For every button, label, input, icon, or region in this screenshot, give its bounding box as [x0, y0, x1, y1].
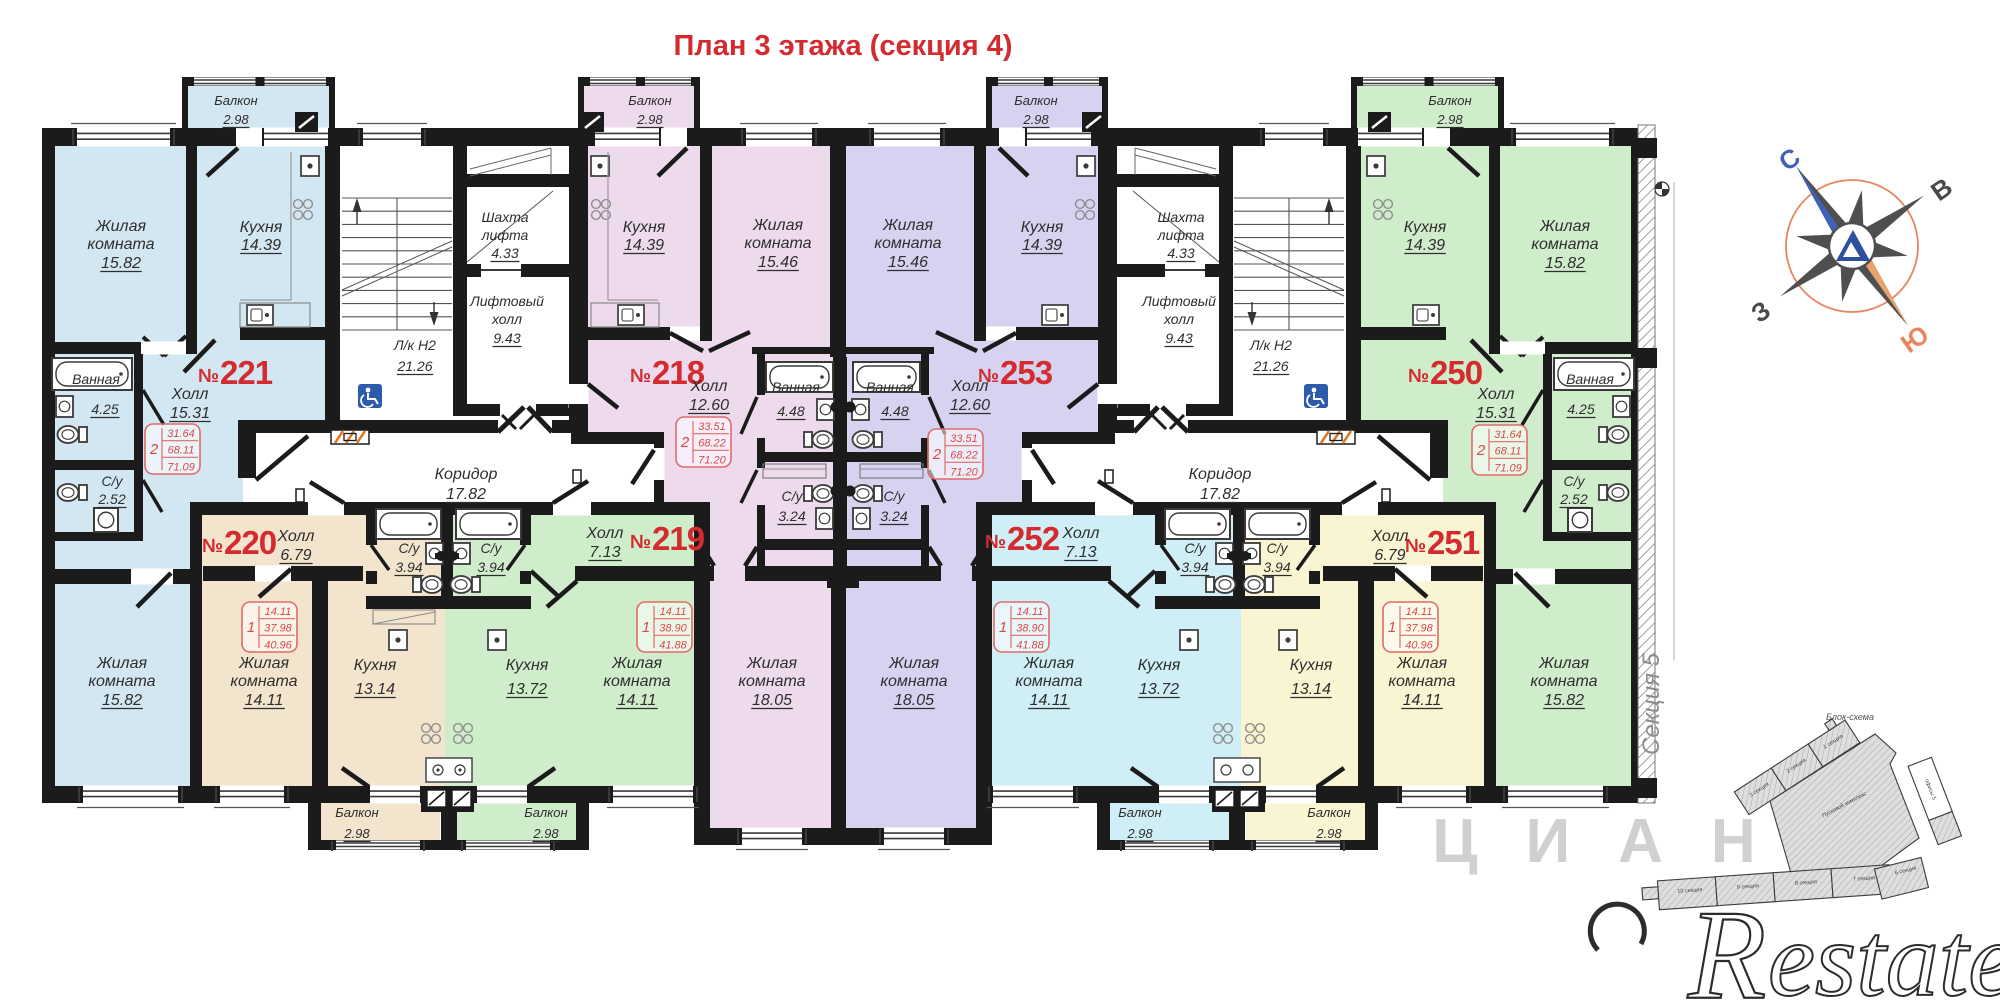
- svg-text:ЦИАН: ЦИАН: [1432, 807, 1803, 876]
- svg-text:252: 252: [1007, 520, 1060, 557]
- svg-text:71.09: 71.09: [1494, 462, 1522, 474]
- svg-text:40.96: 40.96: [264, 639, 292, 651]
- svg-text:3.24: 3.24: [778, 508, 805, 524]
- svg-text:комната: комната: [1388, 673, 1455, 690]
- svg-text:Жилая: Жилая: [1539, 218, 1590, 235]
- svg-text:Секция 5: Секция 5: [1638, 652, 1665, 755]
- svg-text:Ванная: Ванная: [772, 379, 820, 395]
- svg-text:1: 1: [999, 619, 1007, 636]
- svg-text:14.11: 14.11: [245, 692, 284, 709]
- svg-text:Балкон: Балкон: [1014, 93, 1057, 108]
- svg-text:13.14: 13.14: [1291, 681, 1331, 698]
- svg-text:7.13: 7.13: [589, 544, 620, 561]
- svg-text:14.39: 14.39: [241, 237, 281, 254]
- svg-text:комната: комната: [744, 235, 811, 252]
- svg-text:14.39: 14.39: [1405, 237, 1445, 254]
- svg-text:17.82: 17.82: [1200, 486, 1240, 503]
- svg-text:14.11: 14.11: [1403, 692, 1442, 709]
- svg-text:3.94: 3.94: [1181, 559, 1208, 575]
- svg-text:Кухня: Кухня: [1404, 219, 1447, 236]
- svg-text:№: №: [1408, 366, 1429, 387]
- svg-text:13.72: 13.72: [1139, 681, 1179, 698]
- svg-text:15.31: 15.31: [1476, 405, 1516, 422]
- svg-text:Лифтовый: Лифтовый: [1141, 293, 1216, 309]
- svg-text:№: №: [198, 366, 219, 387]
- svg-text:219: 219: [652, 520, 705, 557]
- svg-text:комната: комната: [1531, 236, 1598, 253]
- svg-text:15.31: 15.31: [170, 405, 210, 422]
- svg-text:комната: комната: [1530, 673, 1597, 690]
- svg-text:17.82: 17.82: [446, 486, 486, 503]
- svg-text:14.11: 14.11: [660, 606, 687, 618]
- svg-text:С/у: С/у: [399, 540, 421, 556]
- svg-text:4.25: 4.25: [91, 401, 118, 417]
- svg-text:15.82: 15.82: [1545, 255, 1585, 272]
- svg-text:Холл: Холл: [586, 525, 624, 542]
- svg-text:13.72: 13.72: [507, 681, 547, 698]
- svg-text:2.52: 2.52: [1559, 491, 1587, 507]
- svg-text:13.14: 13.14: [355, 681, 395, 698]
- svg-text:2.98: 2.98: [343, 826, 370, 841]
- svg-text:лифта: лифта: [1157, 227, 1205, 243]
- svg-text:Кухня: Кухня: [240, 219, 283, 236]
- svg-text:Жилая: Жилая: [611, 655, 662, 672]
- svg-text:33.51: 33.51: [950, 433, 978, 445]
- svg-text:21.26: 21.26: [396, 358, 432, 374]
- svg-text:комната: комната: [880, 673, 947, 690]
- svg-text:Балкон: Балкон: [1428, 93, 1471, 108]
- svg-text:14.11: 14.11: [265, 606, 292, 618]
- svg-text:15.46: 15.46: [758, 254, 798, 271]
- svg-text:220: 220: [224, 524, 276, 561]
- svg-text:68.22: 68.22: [698, 438, 726, 450]
- svg-text:15.46: 15.46: [888, 254, 928, 271]
- svg-text:комната: комната: [603, 673, 670, 690]
- svg-text:Коридор: Коридор: [1189, 466, 1252, 483]
- svg-text:Холл: Холл: [277, 528, 315, 545]
- svg-text:С/у: С/у: [884, 488, 906, 504]
- svg-text:Ванная: Ванная: [72, 371, 120, 387]
- svg-text:3.24: 3.24: [880, 508, 907, 524]
- svg-text:2.98: 2.98: [1126, 826, 1153, 841]
- svg-text:Кухня: Кухня: [506, 657, 549, 674]
- svg-text:6.79: 6.79: [1374, 547, 1405, 564]
- svg-text:38.90: 38.90: [659, 623, 687, 635]
- svg-text:С/у: С/у: [102, 473, 124, 489]
- svg-text:40.96: 40.96: [1405, 639, 1433, 651]
- svg-text:№: №: [630, 532, 651, 553]
- svg-text:Кухня: Кухня: [1138, 657, 1181, 674]
- svg-text:холл: холл: [1163, 311, 1194, 327]
- svg-text:14.11: 14.11: [1030, 692, 1069, 709]
- svg-text:комната: комната: [230, 673, 297, 690]
- svg-text:18.05: 18.05: [752, 692, 792, 709]
- svg-text:2: 2: [149, 441, 159, 458]
- svg-text:4.33: 4.33: [1167, 245, 1194, 261]
- svg-text:Холл: Холл: [1477, 386, 1515, 403]
- svg-text:2: 2: [1476, 442, 1486, 459]
- svg-text:С/у: С/у: [782, 488, 804, 504]
- svg-text:7.13: 7.13: [1065, 544, 1096, 561]
- svg-text:С/у: С/у: [1185, 540, 1207, 556]
- svg-text:Жилая: Жилая: [1023, 655, 1074, 672]
- svg-text:estate: estate: [1768, 901, 2000, 1000]
- svg-text:31.64: 31.64: [167, 428, 195, 440]
- svg-text:Жилая: Жилая: [96, 655, 147, 672]
- svg-text:15.82: 15.82: [101, 255, 141, 272]
- svg-text:Жилая: Жилая: [888, 655, 939, 672]
- svg-text:14.11: 14.11: [1017, 606, 1044, 618]
- svg-text:R: R: [1687, 884, 1766, 1000]
- svg-text:Балкон: Балкон: [1307, 805, 1350, 820]
- svg-text:холл: холл: [491, 311, 522, 327]
- svg-text:С/у: С/у: [1267, 540, 1289, 556]
- svg-text:Холл: Холл: [690, 378, 728, 395]
- svg-text:14.11: 14.11: [1406, 606, 1433, 618]
- svg-text:4.48: 4.48: [881, 403, 908, 419]
- svg-text:Холл: Холл: [171, 386, 209, 403]
- svg-text:3.94: 3.94: [1263, 559, 1290, 575]
- svg-text:№: №: [202, 536, 223, 557]
- svg-text:С/у: С/у: [1564, 473, 1586, 489]
- svg-text:2.52: 2.52: [97, 491, 125, 507]
- svg-text:2.98: 2.98: [1436, 112, 1463, 127]
- svg-text:37.98: 37.98: [264, 623, 292, 635]
- svg-text:2.98: 2.98: [532, 826, 559, 841]
- svg-text:68.11: 68.11: [1495, 446, 1522, 458]
- svg-text:Кухня: Кухня: [354, 657, 397, 674]
- svg-text:12.60: 12.60: [689, 397, 729, 414]
- svg-text:Жилая: Жилая: [752, 217, 803, 234]
- svg-text:Жилая: Жилая: [746, 655, 797, 672]
- svg-text:253: 253: [1000, 354, 1053, 391]
- svg-text:15.82: 15.82: [102, 692, 142, 709]
- svg-text:План 3 этажа (секция 4): План 3 этажа (секция 4): [673, 30, 1012, 62]
- svg-text:Балкон: Балкон: [335, 805, 378, 820]
- svg-text:Кухня: Кухня: [1021, 219, 1064, 236]
- svg-text:Коридор: Коридор: [435, 466, 498, 483]
- svg-text:21.26: 21.26: [1252, 358, 1288, 374]
- svg-text:31.64: 31.64: [1494, 429, 1522, 441]
- svg-text:4.25: 4.25: [1567, 401, 1594, 417]
- svg-text:Л/к Н2: Л/к Н2: [393, 337, 436, 353]
- svg-text:Лифтовый: Лифтовый: [469, 293, 544, 309]
- svg-text:2.98: 2.98: [1315, 826, 1342, 841]
- svg-text:2.98: 2.98: [1022, 112, 1049, 127]
- svg-text:2: 2: [932, 446, 942, 463]
- svg-text:Жилая: Жилая: [95, 218, 146, 235]
- svg-text:Жилая: Жилая: [882, 217, 933, 234]
- svg-text:Балкон: Балкон: [214, 93, 257, 108]
- svg-text:Ванная: Ванная: [1566, 371, 1614, 387]
- svg-text:комната: комната: [87, 236, 154, 253]
- svg-text:38.90: 38.90: [1016, 623, 1044, 635]
- svg-text:1: 1: [247, 619, 255, 636]
- svg-text:Кухня: Кухня: [623, 219, 666, 236]
- svg-text:Шахта: Шахта: [1158, 209, 1205, 225]
- svg-text:3.94: 3.94: [395, 559, 422, 575]
- svg-text:41.88: 41.88: [659, 639, 687, 651]
- svg-text:9.43: 9.43: [1165, 330, 1192, 346]
- svg-text:Балкон: Балкон: [524, 805, 567, 820]
- svg-text:2.98: 2.98: [636, 112, 663, 127]
- svg-text:Жилая: Жилая: [1538, 655, 1589, 672]
- svg-text:комната: комната: [88, 673, 155, 690]
- svg-text:Ванная: Ванная: [866, 379, 914, 395]
- svg-text:6.79: 6.79: [280, 547, 311, 564]
- svg-text:250: 250: [1430, 354, 1482, 391]
- svg-text:2.98: 2.98: [222, 112, 249, 127]
- svg-text:71.20: 71.20: [950, 466, 978, 478]
- svg-text:3.94: 3.94: [477, 559, 504, 575]
- svg-text:4.48: 4.48: [777, 403, 804, 419]
- svg-text:33.51: 33.51: [698, 421, 726, 433]
- svg-text:комната: комната: [874, 235, 941, 252]
- svg-text:71.20: 71.20: [698, 454, 726, 466]
- svg-text:Жилая: Жилая: [238, 655, 289, 672]
- svg-text:№: №: [985, 532, 1006, 553]
- svg-text:9.43: 9.43: [493, 330, 520, 346]
- svg-text:1: 1: [642, 619, 650, 636]
- svg-text:Холл: Холл: [951, 378, 989, 395]
- svg-text:Кухня: Кухня: [1290, 657, 1333, 674]
- svg-text:12.60: 12.60: [950, 397, 990, 414]
- svg-text:14.39: 14.39: [1022, 237, 1062, 254]
- svg-text:Холл: Холл: [1371, 528, 1409, 545]
- svg-text:14.11: 14.11: [618, 692, 657, 709]
- svg-text:1: 1: [1388, 619, 1396, 636]
- svg-text:комната: комната: [738, 673, 805, 690]
- svg-text:221: 221: [220, 354, 273, 391]
- svg-text:68.22: 68.22: [950, 450, 978, 462]
- svg-text:Балкон: Балкон: [1118, 805, 1161, 820]
- svg-text:лифта: лифта: [481, 227, 529, 243]
- svg-text:18.05: 18.05: [894, 692, 934, 709]
- svg-text:2: 2: [680, 434, 690, 451]
- svg-text:Холл: Холл: [1062, 525, 1100, 542]
- svg-text:4.33: 4.33: [491, 245, 518, 261]
- svg-text:№: №: [630, 366, 651, 387]
- svg-text:68.11: 68.11: [168, 445, 195, 457]
- svg-text:251: 251: [1427, 524, 1480, 561]
- svg-text:С/у: С/у: [481, 540, 503, 556]
- svg-text:Жилая: Жилая: [1396, 655, 1447, 672]
- svg-text:Балкон: Балкон: [628, 93, 671, 108]
- svg-text:Л/к Н2: Л/к Н2: [1249, 337, 1292, 353]
- svg-text:71.09: 71.09: [167, 461, 195, 473]
- svg-text:14.39: 14.39: [624, 237, 664, 254]
- svg-text:комната: комната: [1015, 673, 1082, 690]
- svg-text:37.98: 37.98: [1405, 623, 1433, 635]
- svg-text:41.88: 41.88: [1016, 639, 1044, 651]
- svg-text:Шахта: Шахта: [482, 209, 529, 225]
- svg-text:15.82: 15.82: [1544, 692, 1584, 709]
